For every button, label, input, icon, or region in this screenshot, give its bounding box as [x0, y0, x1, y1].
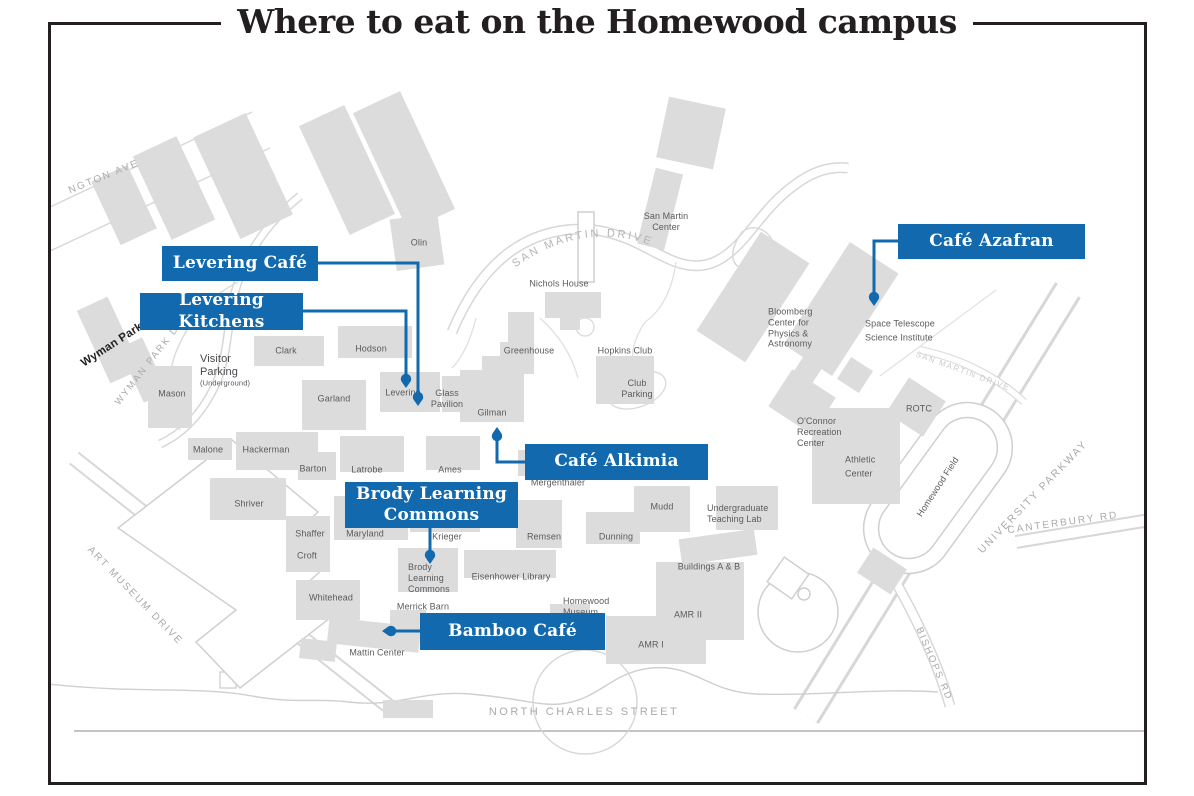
callout-boxes-layer: Levering CaféLevering KitchensCafé Azafr… [51, 25, 1144, 782]
map-area: SAN MARTIN DRIVE OlinSan Martin CenterNi… [51, 25, 1144, 782]
callout-levering-caf: Levering Café [162, 246, 318, 281]
callout-bamboo-caf: Bamboo Café [420, 613, 605, 650]
campus-map: SAN MARTIN DRIVE OlinSan Martin CenterNi… [0, 0, 1194, 796]
callout-caf-alkimia: Café Alkimia [525, 444, 708, 480]
callout-brody-learning-commons: Brody Learning Commons [345, 482, 518, 528]
callout-levering-kitchens: Levering Kitchens [140, 293, 303, 330]
callout-caf-azafran: Café Azafran [898, 224, 1085, 259]
